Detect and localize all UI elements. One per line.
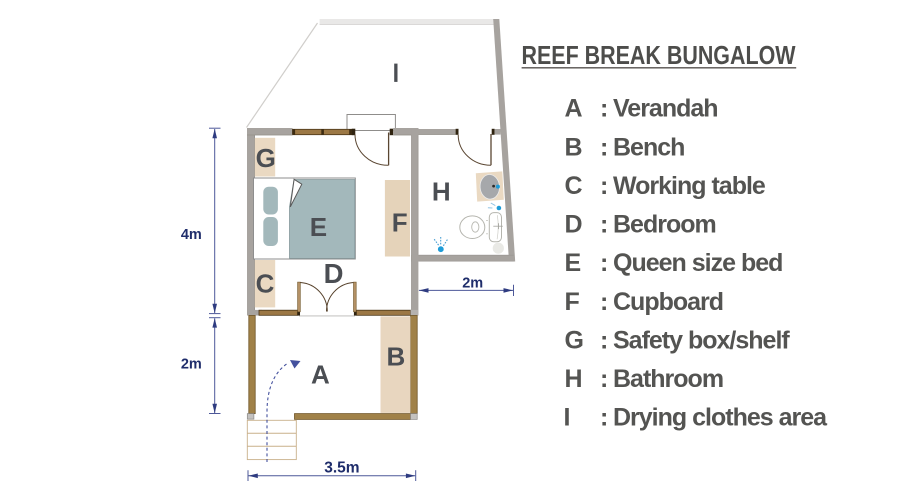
- svg-text::: :: [600, 326, 607, 354]
- svg-text:Working table: Working table: [613, 172, 766, 200]
- svg-text::: :: [600, 365, 607, 393]
- svg-text:Drying clothes area: Drying clothes area: [613, 404, 828, 432]
- svg-text:REEF BREAK BUNGALOW: REEF BREAK BUNGALOW: [522, 40, 796, 70]
- svg-text::: :: [600, 249, 607, 277]
- svg-text::: :: [600, 404, 607, 432]
- svg-text:F: F: [392, 207, 408, 237]
- svg-text:E: E: [565, 249, 581, 277]
- svg-text:B: B: [565, 133, 582, 161]
- svg-text::: :: [600, 133, 607, 161]
- svg-text:E: E: [310, 212, 327, 242]
- svg-text:C: C: [256, 268, 275, 298]
- svg-text:3.5m: 3.5m: [324, 459, 359, 476]
- svg-text:Bench: Bench: [613, 133, 684, 161]
- svg-text:Cupboard: Cupboard: [613, 288, 723, 316]
- svg-text:G: G: [256, 143, 276, 173]
- svg-text:G: G: [565, 326, 583, 354]
- svg-text::: :: [600, 288, 607, 316]
- svg-text:C: C: [565, 172, 583, 200]
- svg-text:Bedroom: Bedroom: [613, 211, 716, 239]
- svg-text:D: D: [324, 258, 344, 289]
- svg-text:Queen size bed: Queen size bed: [613, 249, 782, 277]
- svg-text:I: I: [564, 404, 570, 432]
- svg-text:H: H: [432, 177, 451, 207]
- svg-text:2m: 2m: [181, 356, 202, 372]
- svg-text::: :: [600, 172, 607, 200]
- svg-text:D: D: [565, 211, 582, 239]
- svg-text:A: A: [311, 360, 330, 390]
- svg-text:Verandah: Verandah: [613, 95, 718, 123]
- svg-text::: :: [600, 211, 607, 239]
- svg-text:H: H: [565, 365, 582, 393]
- svg-text:A: A: [565, 95, 583, 123]
- svg-text::: :: [600, 95, 607, 123]
- svg-text:Bathroom: Bathroom: [613, 365, 723, 393]
- svg-text:4m: 4m: [181, 227, 202, 243]
- svg-text:F: F: [565, 288, 580, 316]
- svg-text:Safety box/shelf: Safety box/shelf: [613, 326, 790, 354]
- svg-text:B: B: [387, 342, 406, 372]
- svg-text:2m: 2m: [462, 276, 483, 292]
